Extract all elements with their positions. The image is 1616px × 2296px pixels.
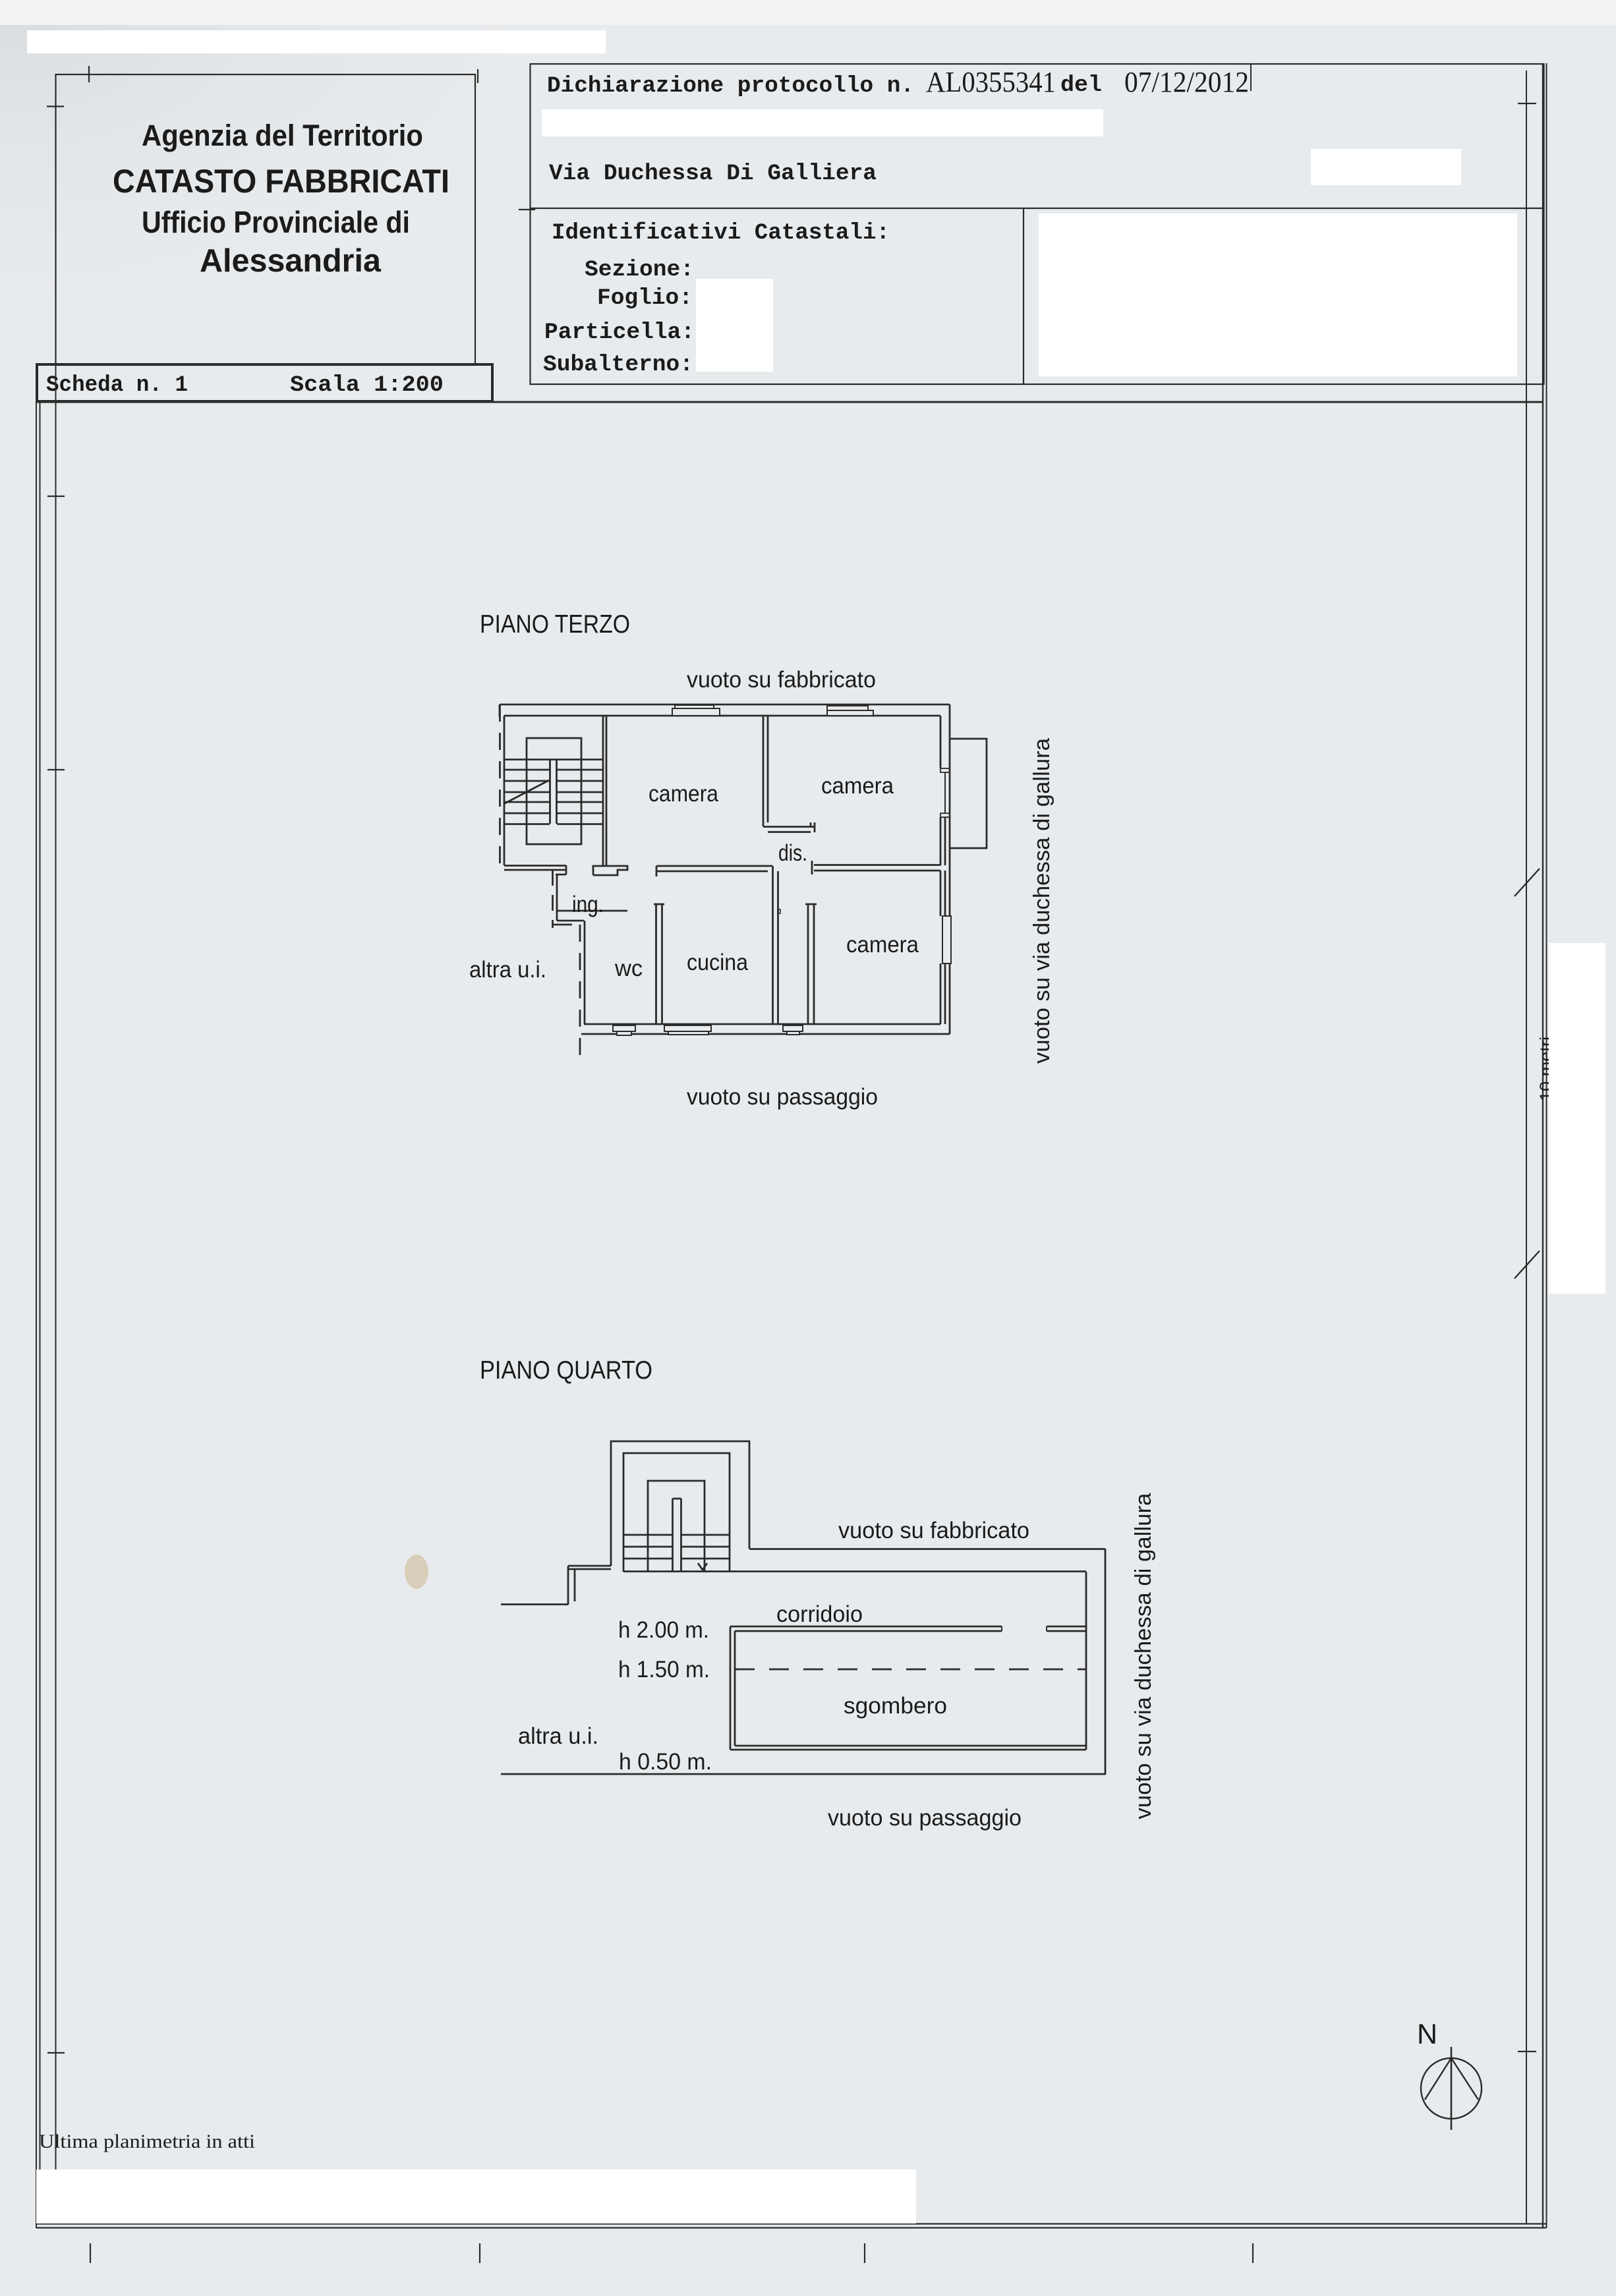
svg-text:sgombero: sgombero	[844, 1693, 947, 1719]
svg-text:vuoto su fabbricato: vuoto su fabbricato	[838, 1518, 1029, 1543]
svg-text:wc: wc	[614, 956, 643, 981]
svg-text:Scheda n. 1: Scheda n. 1	[46, 372, 188, 398]
svg-text:Particella:: Particella:	[544, 320, 695, 345]
svg-text:camera: camera	[821, 773, 894, 799]
svg-text:Dichiarazione protocollo n.: Dichiarazione protocollo n.	[547, 73, 914, 99]
svg-text:07/12/2012: 07/12/2012	[1124, 66, 1249, 98]
svg-text:AL0355341: AL0355341	[926, 66, 1056, 98]
svg-text:Foglio:: Foglio:	[597, 285, 693, 311]
svg-text:N: N	[1417, 2019, 1437, 2050]
svg-text:PIANO QUARTO: PIANO QUARTO	[480, 1356, 652, 1385]
svg-text:camera: camera	[649, 781, 718, 807]
svg-text:vuoto su passaggio: vuoto su passaggio	[687, 1084, 878, 1110]
svg-text:ing.: ing.	[572, 892, 604, 917]
svg-text:Scala 1:200: Scala 1:200	[290, 372, 444, 398]
svg-text:vuoto su fabbricato: vuoto su fabbricato	[687, 667, 876, 693]
svg-text:vuoto su passaggio: vuoto su passaggio	[828, 1805, 1022, 1831]
svg-text:dis.: dis.	[778, 840, 807, 866]
svg-text:vuoto su via duchessa di gallu: vuoto su via duchessa di gallura	[1029, 738, 1054, 1064]
svg-text:Subalterno:: Subalterno:	[543, 352, 693, 378]
svg-text:h 2.00 m.: h 2.00 m.	[618, 1617, 709, 1643]
svg-text:Alessandria: Alessandria	[200, 243, 382, 279]
svg-text:Sezione:: Sezione:	[585, 257, 694, 283]
svg-text:Ultima planimetria in atti: Ultima planimetria in atti	[39, 2131, 255, 2152]
svg-text:cucina: cucina	[687, 950, 748, 975]
svg-text:Identificativi Catastali:: Identificativi Catastali:	[552, 220, 890, 246]
svg-text:altra u.i.: altra u.i.	[469, 957, 546, 983]
svg-text:Via Duchessa Di Galliera: Via Duchessa Di Galliera	[549, 161, 877, 187]
svg-text:CATASTO FABBRICATI: CATASTO FABBRICATI	[113, 163, 449, 200]
svg-text:h 1.50 m.: h 1.50 m.	[618, 1657, 710, 1682]
svg-text:Agenzia del Territorio: Agenzia del Territorio	[142, 119, 423, 152]
svg-text:Ufficio Provinciale di: Ufficio Provinciale di	[142, 205, 410, 239]
svg-text:corridoio: corridoio	[776, 1601, 863, 1627]
svg-text:PIANO TERZO: PIANO TERZO	[480, 610, 630, 639]
svg-text:del: del	[1060, 72, 1102, 98]
svg-text:camera: camera	[846, 932, 919, 958]
svg-text:altra u.i.: altra u.i.	[518, 1723, 598, 1749]
svg-text:vuoto su via duchessa di gallu: vuoto su via duchessa di gallura	[1131, 1493, 1156, 1819]
svg-text:h 0.50 m.: h 0.50 m.	[619, 1749, 712, 1775]
